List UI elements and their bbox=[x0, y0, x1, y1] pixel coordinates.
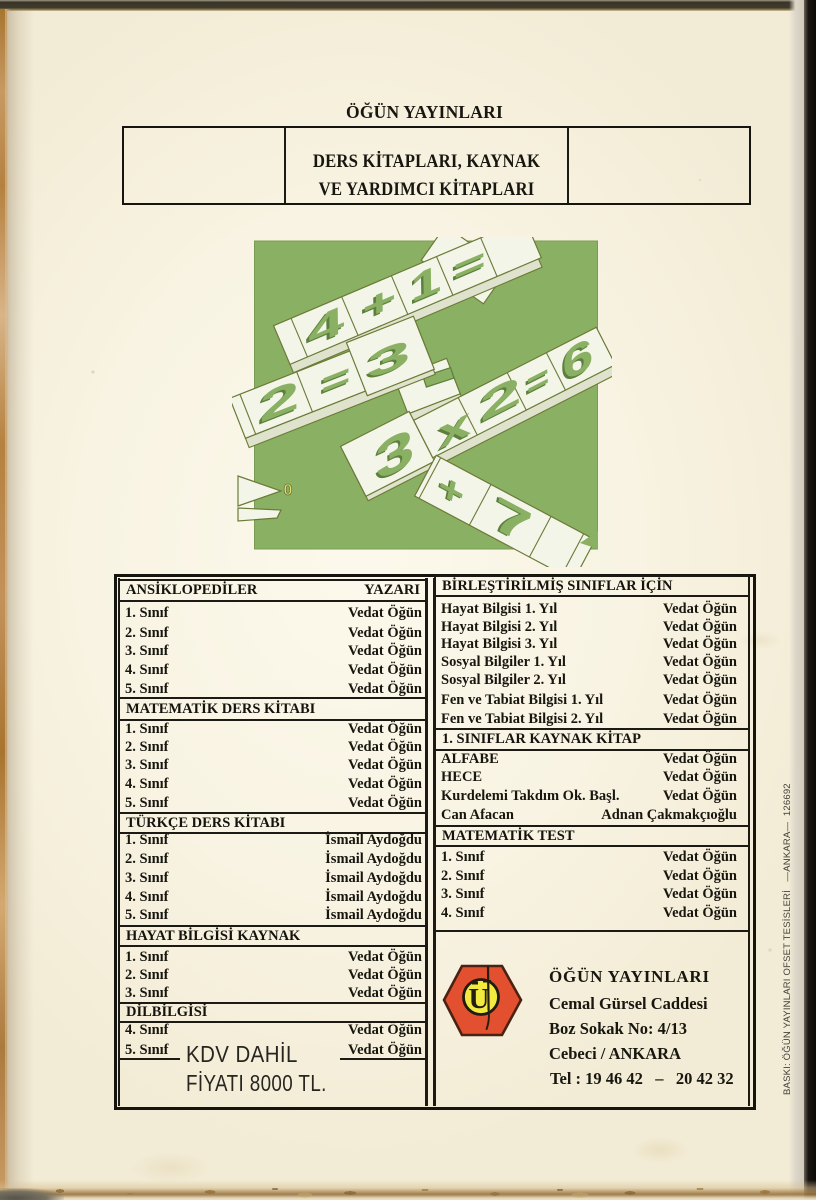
svg-text:U: U bbox=[469, 983, 490, 1015]
svg-text:0: 0 bbox=[284, 482, 293, 499]
